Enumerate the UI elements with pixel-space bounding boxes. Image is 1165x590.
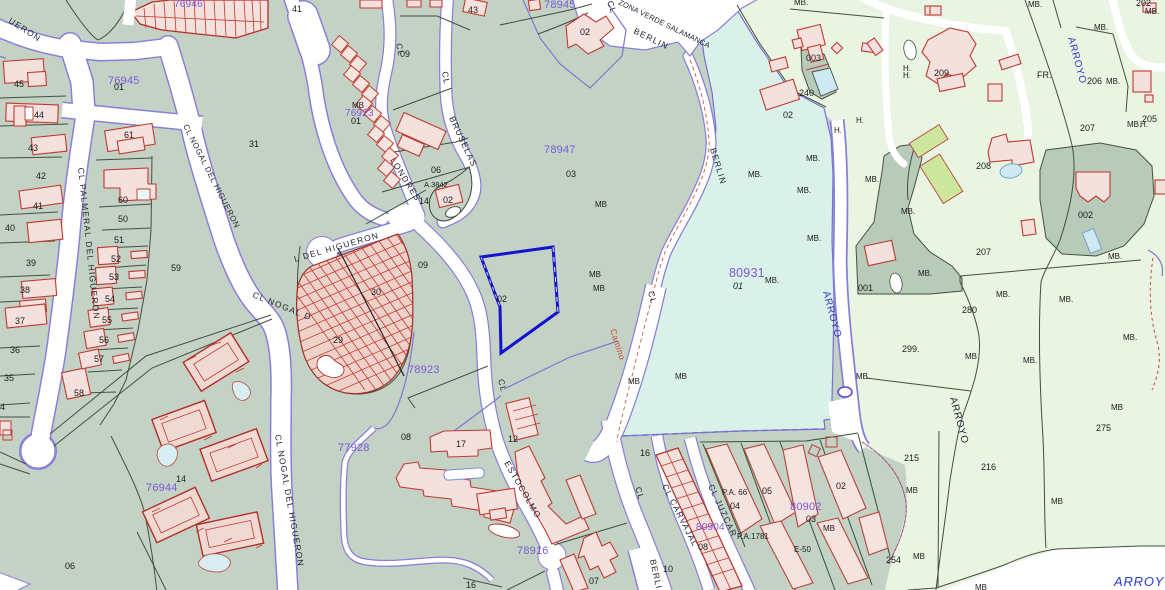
- svg-text:52: 52: [111, 254, 121, 264]
- svg-text:207: 207: [1080, 123, 1095, 133]
- svg-text:MB: MB: [965, 352, 977, 361]
- svg-text:78916: 78916: [517, 545, 549, 557]
- svg-text:MB.: MB.: [806, 154, 820, 163]
- svg-text:50: 50: [118, 214, 128, 224]
- svg-text:MB: MB: [675, 372, 687, 381]
- svg-text:P.A.1781: P.A.1781: [737, 532, 769, 541]
- svg-text:FR.: FR.: [1037, 70, 1052, 80]
- svg-text:MB: MB: [1051, 497, 1063, 506]
- svg-text:02: 02: [497, 294, 507, 304]
- svg-text:51: 51: [114, 235, 124, 245]
- svg-text:MB.: MB.: [1059, 295, 1073, 304]
- svg-text:55: 55: [102, 315, 112, 325]
- svg-text:280: 280: [962, 305, 977, 315]
- svg-text:A.3842: A.3842: [424, 180, 448, 189]
- svg-text:MB: MB: [589, 270, 601, 279]
- svg-text:MB.: MB.: [807, 234, 821, 243]
- svg-text:299.: 299.: [902, 344, 920, 354]
- svg-text:4: 4: [0, 402, 5, 412]
- svg-text:MB.: MB.: [1023, 356, 1037, 365]
- svg-text:29: 29: [333, 335, 343, 345]
- svg-text:78945: 78945: [544, 0, 576, 11]
- svg-text:02: 02: [580, 27, 590, 37]
- svg-text:58: 58: [74, 388, 84, 398]
- svg-text:216: 216: [981, 462, 996, 472]
- svg-text:36: 36: [10, 345, 20, 355]
- svg-text:MB.: MB.: [1127, 120, 1141, 129]
- svg-text:03: 03: [566, 169, 576, 179]
- svg-text:41: 41: [33, 201, 43, 211]
- svg-text:31: 31: [249, 139, 259, 149]
- svg-text:16: 16: [466, 580, 476, 590]
- svg-text:MB: MB: [595, 200, 607, 209]
- svg-text:207: 207: [976, 247, 991, 257]
- svg-text:10: 10: [663, 564, 673, 574]
- svg-text:01: 01: [351, 116, 361, 126]
- svg-text:MB.: MB.: [901, 207, 915, 216]
- svg-text:56: 56: [99, 335, 109, 345]
- svg-text:MB.: MB.: [1094, 23, 1108, 32]
- svg-text:02: 02: [836, 481, 846, 491]
- svg-text:37: 37: [15, 316, 25, 326]
- svg-text:MB.: MB.: [765, 276, 779, 285]
- svg-text:02: 02: [443, 195, 453, 205]
- svg-text:002: 002: [1078, 210, 1093, 220]
- svg-text:43: 43: [28, 143, 38, 153]
- svg-text:53: 53: [109, 272, 119, 282]
- svg-text:44: 44: [34, 110, 44, 120]
- svg-text:MB.: MB.: [1145, 7, 1159, 16]
- svg-text:09: 09: [418, 260, 428, 270]
- svg-text:MB.: MB.: [865, 175, 879, 184]
- svg-text:35: 35: [4, 373, 14, 383]
- svg-text:16: 16: [640, 448, 650, 458]
- svg-text:06: 06: [65, 561, 75, 571]
- svg-text:MB.: MB.: [794, 0, 808, 7]
- svg-text:MB.: MB.: [1028, 0, 1042, 9]
- svg-text:80931: 80931: [729, 266, 765, 280]
- svg-text:209: 209: [934, 68, 949, 78]
- svg-text:MB.: MB.: [1123, 333, 1137, 342]
- svg-text:MB: MB: [823, 524, 835, 533]
- svg-text:80904: 80904: [696, 522, 725, 533]
- svg-text:H.: H.: [903, 71, 911, 80]
- svg-text:01: 01: [733, 281, 743, 291]
- svg-text:MB.: MB.: [1108, 252, 1122, 261]
- svg-text:78947: 78947: [544, 144, 576, 156]
- svg-text:MB: MB: [593, 284, 605, 293]
- svg-text:60: 60: [118, 195, 128, 205]
- svg-text:07: 07: [589, 576, 599, 586]
- svg-text:14: 14: [176, 474, 186, 484]
- svg-text:275: 275: [1096, 423, 1111, 433]
- svg-text:61: 61: [124, 130, 134, 140]
- svg-text:MB: MB: [1111, 403, 1123, 412]
- svg-text:02: 02: [783, 110, 793, 120]
- svg-text:05: 05: [762, 486, 772, 496]
- svg-text:76946: 76946: [174, 0, 203, 10]
- svg-text:240: 240: [799, 88, 814, 98]
- svg-text:MB.: MB.: [748, 170, 762, 179]
- svg-text:MB.: MB.: [856, 372, 870, 381]
- svg-text:206: 206: [1087, 76, 1102, 86]
- svg-text:001: 001: [858, 283, 873, 293]
- svg-text:12: 12: [508, 434, 518, 444]
- svg-text:MB: MB: [913, 552, 925, 561]
- svg-text:208: 208: [976, 161, 991, 171]
- svg-text:43: 43: [468, 5, 478, 15]
- svg-text:38: 38: [20, 285, 30, 295]
- svg-text:59: 59: [171, 263, 181, 273]
- svg-text:MB: MB: [906, 486, 918, 495]
- svg-text:MB: MB: [628, 377, 640, 386]
- svg-text:MB.: MB.: [797, 186, 811, 195]
- svg-text:30: 30: [371, 287, 381, 297]
- svg-text:76944: 76944: [146, 482, 178, 494]
- svg-text:41: 41: [292, 4, 302, 14]
- svg-text:39: 39: [26, 258, 36, 268]
- svg-text:ARROYO: ARROYO: [1113, 574, 1165, 589]
- svg-text:003: 003: [806, 53, 821, 63]
- svg-text:254: 254: [886, 555, 901, 565]
- svg-text:45: 45: [14, 79, 24, 89]
- svg-text:MB: MB: [352, 101, 364, 110]
- svg-text:54: 54: [105, 294, 115, 304]
- svg-text:06: 06: [431, 165, 441, 175]
- svg-text:77928: 77928: [338, 442, 370, 454]
- svg-text:P.A. 66: P.A. 66: [722, 488, 748, 497]
- svg-text:MB.: MB.: [918, 269, 932, 278]
- svg-text:01: 01: [114, 82, 124, 92]
- svg-text:03: 03: [806, 514, 816, 524]
- svg-text:08: 08: [401, 432, 411, 442]
- svg-text:57: 57: [94, 354, 104, 364]
- svg-text:MB.: MB.: [996, 290, 1010, 299]
- svg-text:80902: 80902: [790, 501, 822, 513]
- svg-text:40: 40: [5, 223, 15, 233]
- svg-text:04: 04: [730, 501, 740, 511]
- svg-text:78923: 78923: [408, 364, 440, 376]
- svg-text:MB.: MB.: [1106, 77, 1120, 86]
- svg-text:H.: H.: [834, 126, 842, 135]
- svg-text:H.: H.: [856, 116, 864, 125]
- svg-text:E-50: E-50: [794, 545, 811, 554]
- svg-text:17: 17: [456, 439, 466, 449]
- svg-text:MB: MB: [975, 583, 987, 590]
- svg-text:42: 42: [36, 171, 46, 181]
- svg-text:215: 215: [904, 453, 919, 463]
